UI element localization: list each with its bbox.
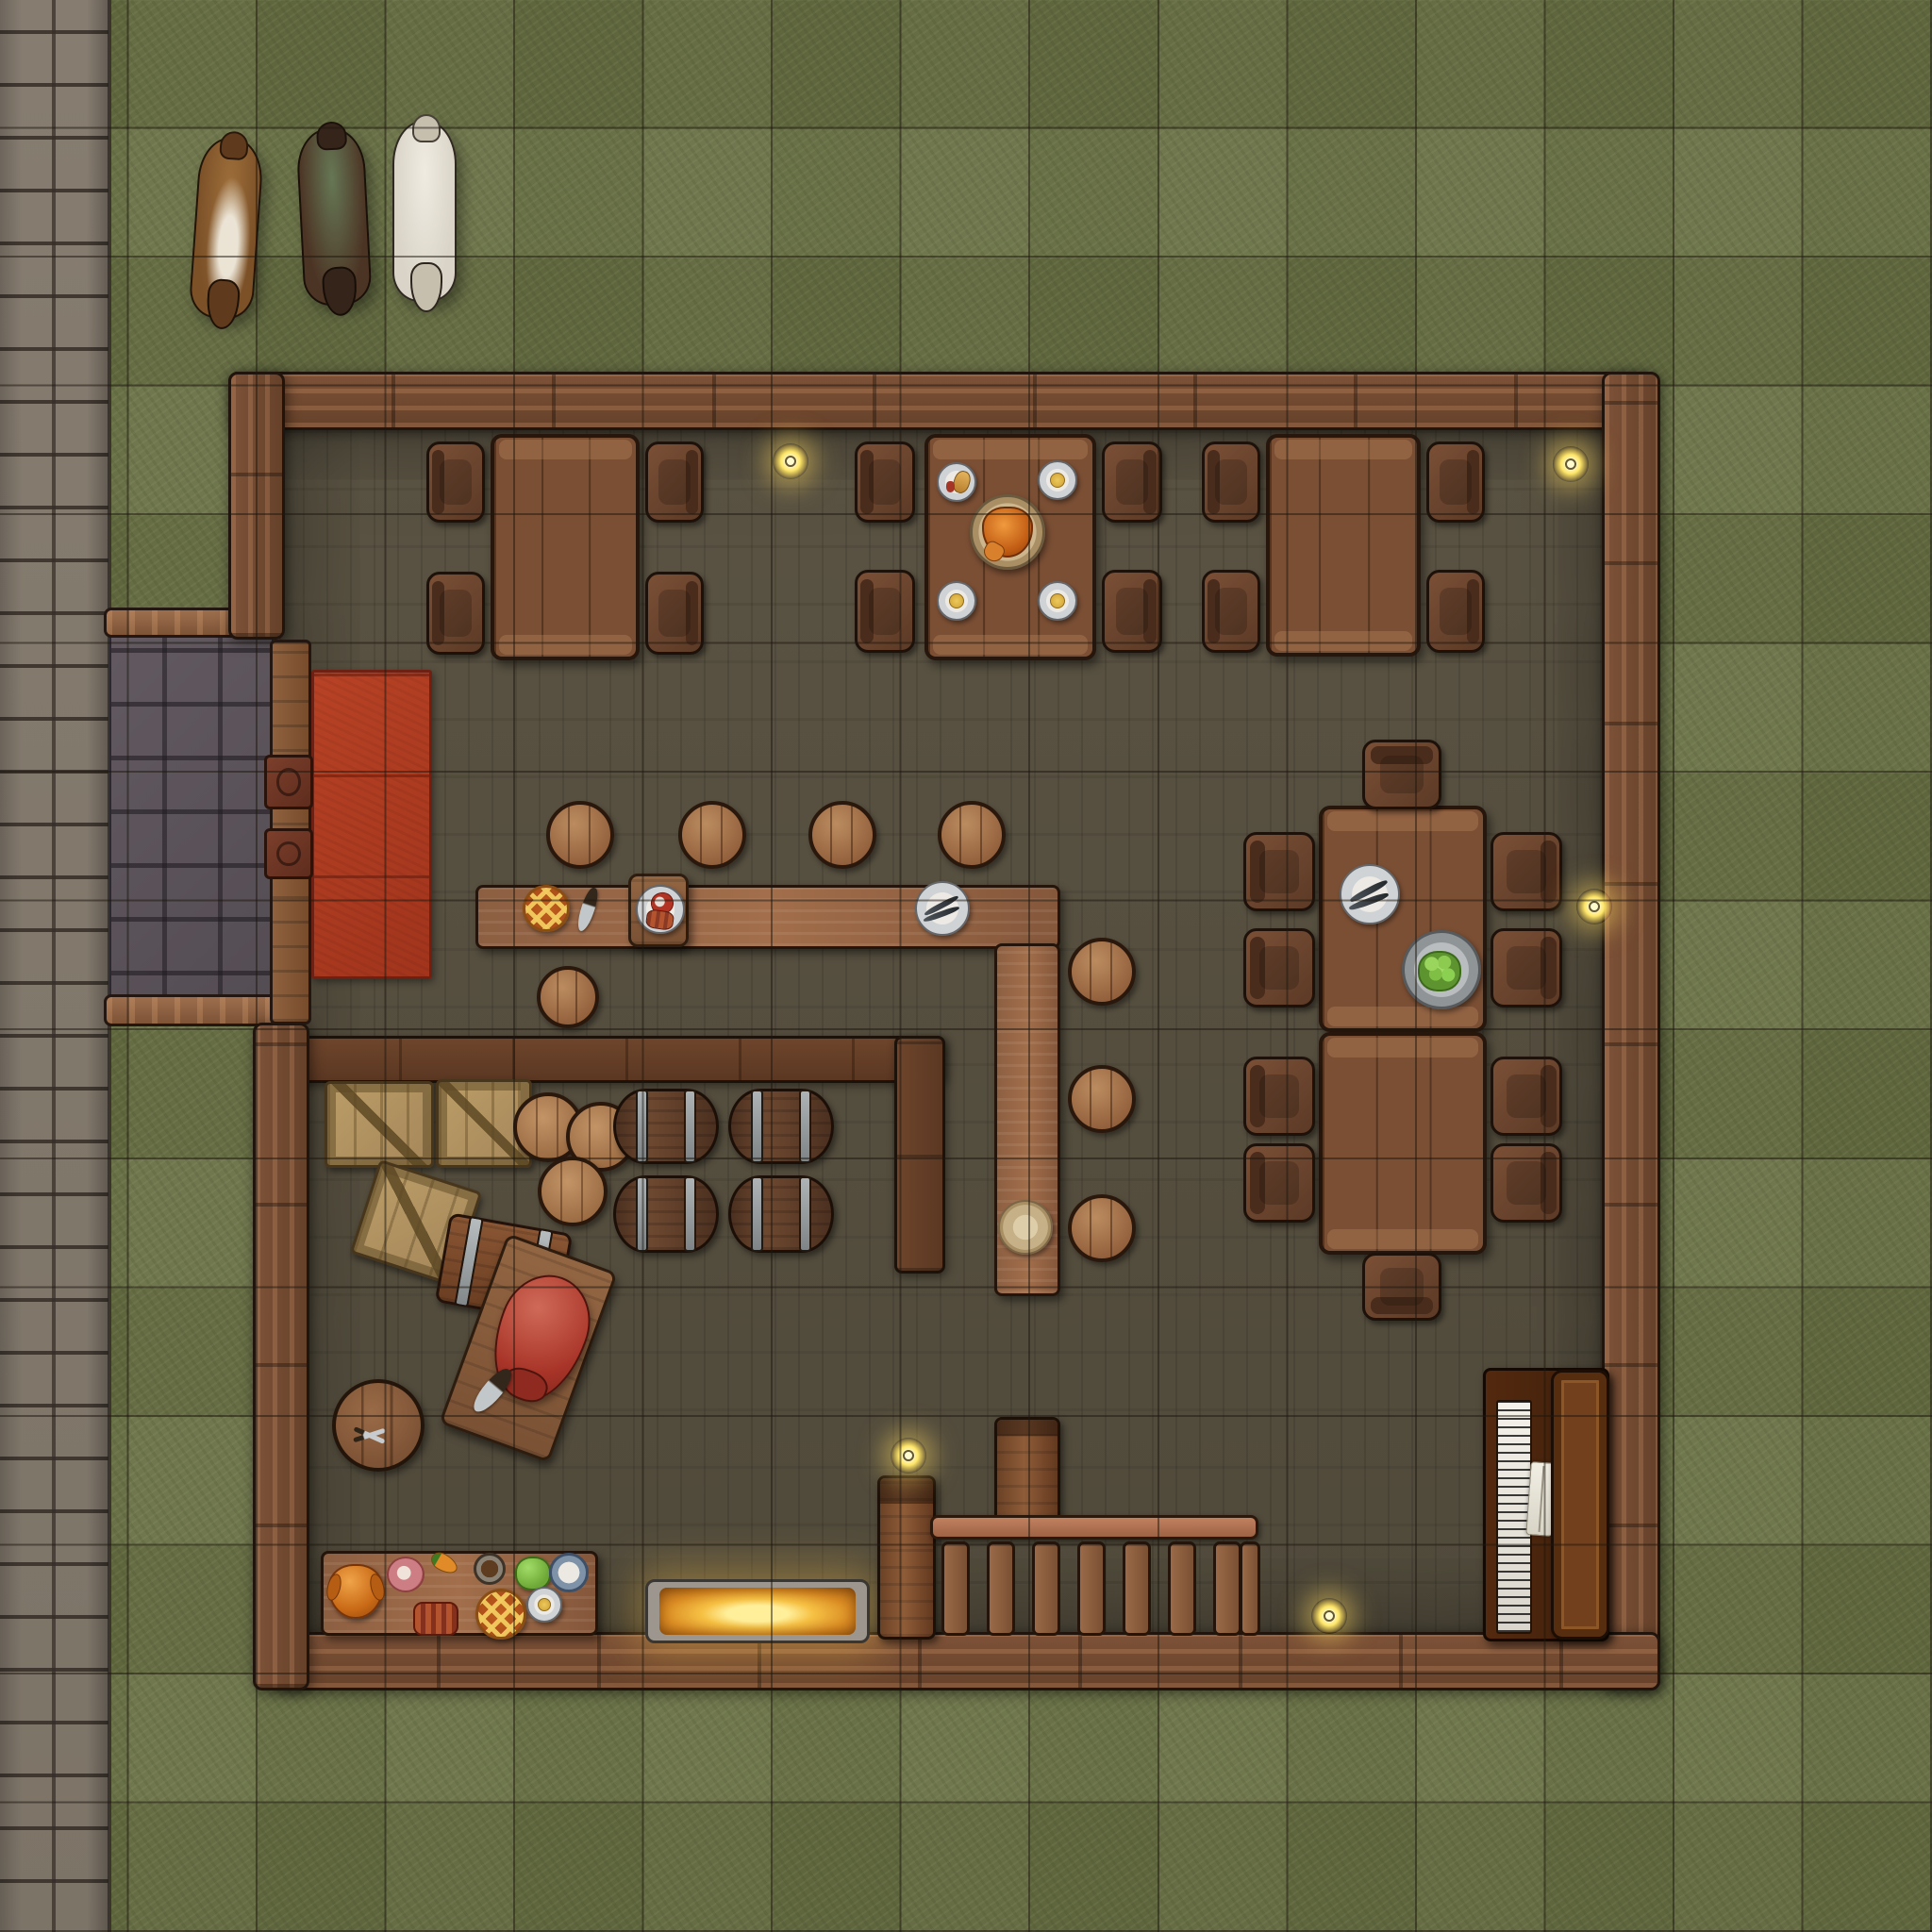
plate-biscuit	[1038, 581, 1077, 621]
chair	[426, 441, 485, 523]
wall-lantern	[1576, 889, 1612, 924]
plate-steak-ribs	[636, 885, 685, 934]
kitchen-wall-vertical	[894, 1036, 945, 1274]
plate-biscuit	[1038, 460, 1077, 500]
chair	[1102, 441, 1162, 523]
chair	[1243, 928, 1315, 1008]
chair	[1426, 570, 1485, 653]
railing-baluster	[1213, 1541, 1241, 1636]
barrel	[613, 1175, 719, 1253]
chair	[1426, 441, 1485, 523]
railing-baluster	[1168, 1541, 1196, 1636]
chair	[1362, 1253, 1441, 1321]
chair	[426, 572, 485, 655]
wall-lantern	[773, 443, 808, 479]
wall-bottom	[274, 1632, 1660, 1690]
railing-baluster	[941, 1541, 970, 1636]
railing-baluster	[1077, 1541, 1106, 1636]
tan-serving-plate	[998, 1200, 1053, 1255]
chair	[855, 441, 915, 523]
horse-white[interactable]	[392, 121, 457, 302]
chair	[1491, 1143, 1562, 1223]
chair	[645, 441, 704, 523]
railing-end-post	[1240, 1541, 1260, 1636]
crossed-knives	[349, 1419, 391, 1451]
chair	[855, 570, 915, 653]
chair	[1243, 1143, 1315, 1223]
railing-baluster	[1123, 1541, 1151, 1636]
chair	[1102, 570, 1162, 653]
bar-stool	[938, 801, 1006, 869]
rack-of-ribs	[413, 1602, 458, 1636]
railing-top-rail	[930, 1515, 1258, 1540]
chair	[1243, 1057, 1315, 1136]
barrel	[728, 1089, 834, 1164]
wall-lantern	[1553, 446, 1589, 482]
horse-dark-brown[interactable]	[295, 126, 373, 308]
door-hinge-lower	[264, 828, 313, 879]
bowl-of-milk	[549, 1553, 589, 1592]
chair	[1243, 832, 1315, 911]
plate-fish	[915, 881, 970, 936]
plate-biscuit	[937, 581, 976, 621]
lantern-post	[877, 1475, 936, 1640]
plate-fried-egg	[526, 1587, 562, 1623]
plate-bread-sausage	[937, 462, 976, 502]
chair	[1491, 832, 1562, 911]
wall-top	[228, 372, 1647, 430]
piano-lid	[1551, 1370, 1609, 1640]
chair	[1491, 928, 1562, 1008]
roast-turkey-platter	[970, 494, 1045, 570]
entry-carpet	[311, 670, 432, 979]
ham-slice	[387, 1557, 425, 1592]
plate-fish	[1340, 864, 1400, 924]
porch-beam-bottom	[104, 994, 289, 1026]
bar-stool	[1068, 1194, 1136, 1262]
bar-stool	[546, 801, 614, 869]
pie-on-bar	[523, 885, 570, 932]
bowl-of-stew	[474, 1553, 506, 1585]
bar-stool	[1068, 1065, 1136, 1133]
chair	[1202, 441, 1260, 523]
crate	[325, 1081, 434, 1168]
pie	[475, 1589, 526, 1640]
hearth-fire	[645, 1579, 870, 1643]
grape-bunch	[515, 1557, 551, 1591]
bar-stool	[537, 966, 599, 1028]
keg-upright	[538, 1157, 608, 1226]
chair	[1491, 1057, 1562, 1136]
kitchen-wall-horizontal	[283, 1036, 945, 1083]
bar-stool	[678, 801, 746, 869]
barrel	[613, 1089, 719, 1164]
bar-stool	[808, 801, 876, 869]
bar-stool	[1068, 938, 1136, 1006]
support-pillar	[994, 1417, 1060, 1524]
wall-left-upper	[228, 372, 285, 640]
railing-baluster	[1032, 1541, 1060, 1636]
battle-map[interactable]	[0, 0, 1932, 1932]
railing-baluster	[987, 1541, 1015, 1636]
post-lantern	[891, 1438, 926, 1474]
horse-pinto[interactable]	[188, 136, 264, 321]
porch-flagstones	[109, 615, 274, 1026]
dining-table-right	[1266, 434, 1421, 657]
wall-left-lower	[253, 1023, 309, 1690]
chair	[1362, 740, 1441, 809]
floor-lantern	[1311, 1598, 1347, 1634]
wall-right	[1602, 372, 1660, 1690]
bowl-of-grapes	[1402, 930, 1481, 1009]
cobblestone-road	[0, 0, 111, 1932]
barrel	[728, 1175, 834, 1253]
chair	[645, 572, 704, 655]
long-table-lower	[1319, 1032, 1487, 1255]
chair	[1202, 570, 1260, 653]
door-hinge-upper	[264, 755, 313, 809]
dining-table-left	[491, 434, 640, 660]
